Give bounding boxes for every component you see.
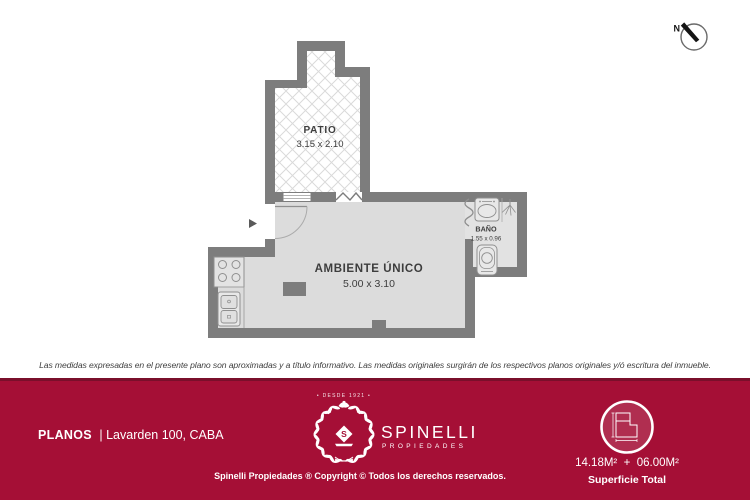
doorway-opening <box>263 204 275 239</box>
surface-badge-icon <box>599 399 655 455</box>
main-room-label: AMBIENTE ÚNICO <box>315 262 424 275</box>
patio-label: PATIO <box>303 125 336 136</box>
plan-address: PLANOS | Lavarden 100, CABA <box>38 428 224 442</box>
brand-subtitle: PROPIEDADES <box>382 443 466 450</box>
floor-plan: PATIO 3.15 x 2.10 AMBIENTE ÚNICO 5.00 x … <box>0 0 750 356</box>
footer: PLANOS | Lavarden 100, CABA • DESDE 1921… <box>0 378 750 500</box>
surface-total-value: 14.18M² + 06.00M² <box>575 457 679 469</box>
wreath-stems <box>335 457 353 461</box>
laurel-wreath-logo: S <box>309 400 379 468</box>
main-room-dims: 5.00 x 3.10 <box>343 278 395 290</box>
flyer-page: PATIO 3.15 x 2.10 AMBIENTE ÚNICO 5.00 x … <box>0 0 750 500</box>
wall-stub <box>372 320 386 338</box>
crest-icon <box>339 401 350 408</box>
entrance-arrow-icon <box>249 219 257 228</box>
open-boundary-icon <box>336 192 362 202</box>
banner <box>335 444 353 446</box>
bathroom-partition-wall <box>465 239 473 267</box>
window-icon <box>283 193 311 202</box>
compass-n-label: N <box>674 24 681 34</box>
monogram-letter: S <box>341 429 347 439</box>
disclaimer-text: Las medidas expresadas en el presente pl… <box>0 360 750 370</box>
doc-type-label: PLANOS <box>38 428 92 442</box>
washbasin-icon <box>475 198 499 221</box>
bath-label: BAÑO <box>475 225 497 234</box>
bath-dims: 1.55 x 0.96 <box>471 236 502 243</box>
stove-icon <box>214 257 244 287</box>
copyright-text: Spinelli Propiedades ® Copyright © Todos… <box>214 471 506 481</box>
toilet-icon <box>477 245 497 275</box>
patio-dims: 3.15 x 2.10 <box>296 139 343 150</box>
furniture-block <box>283 282 306 296</box>
sink-icon <box>218 292 240 326</box>
monogram-diamond: S <box>335 426 353 447</box>
compass-icon: N <box>674 22 708 50</box>
address-label: | Lavarden 100, CABA <box>99 428 223 442</box>
brand-since-label: • DESDE 1921 • <box>317 393 371 399</box>
brand-name: SPINELLI <box>381 422 478 443</box>
surface-total-label: Superficie Total <box>588 474 666 486</box>
kitchen-area <box>214 257 244 328</box>
